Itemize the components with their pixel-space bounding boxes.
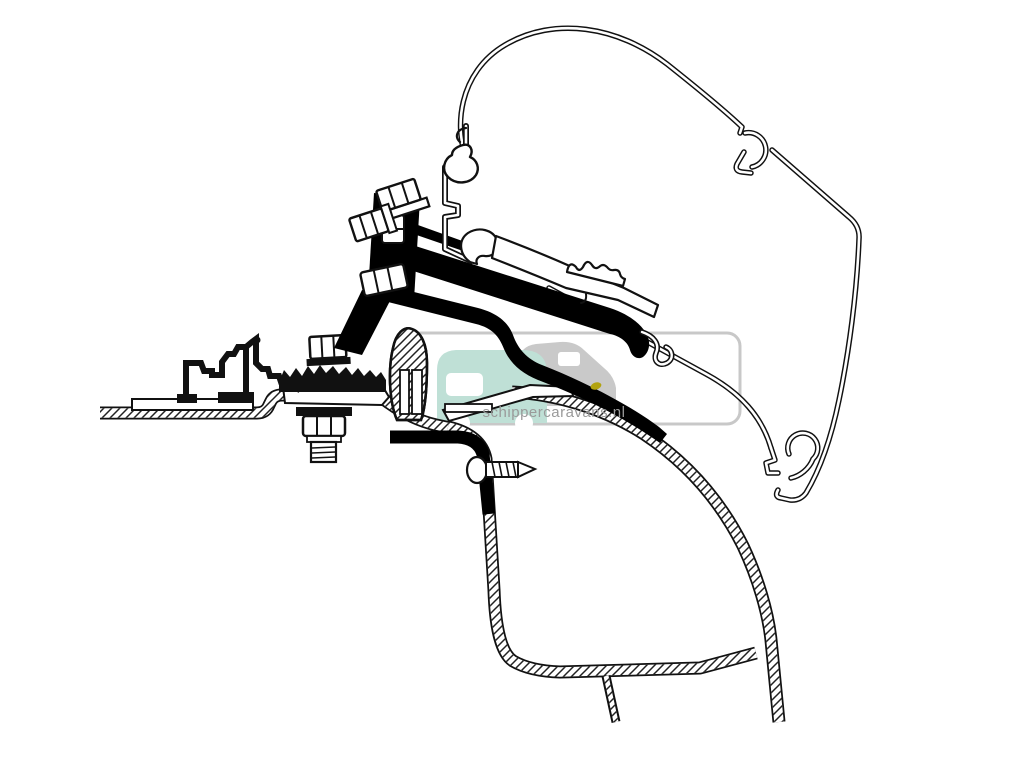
lock-nut-and-stud [296, 407, 352, 462]
interior-panel [606, 676, 616, 722]
cross-section-drawing: schippercaravans.nl [0, 0, 1024, 757]
bracket-leg [334, 290, 392, 355]
watermark-text: schippercaravans.nl [483, 404, 626, 421]
diagram-canvas: schippercaravans.nl [0, 0, 1024, 757]
serrated-strip [279, 365, 386, 392]
self-tapping-screw [467, 457, 535, 483]
door-seal-profile [390, 328, 427, 420]
rail-top-hook [444, 145, 478, 183]
